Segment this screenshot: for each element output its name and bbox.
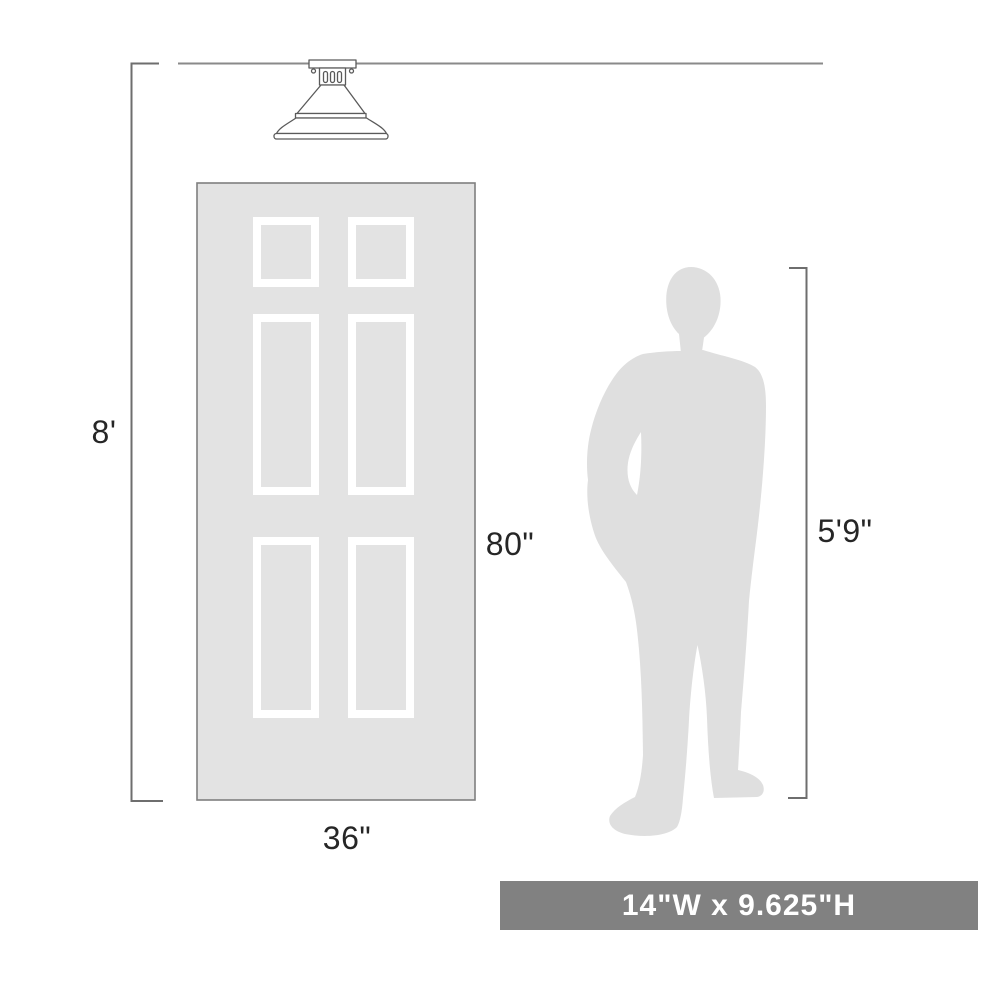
ceiling-height-label: 8' (92, 416, 117, 448)
person-head (666, 267, 720, 353)
fixture-neck-slot (324, 72, 328, 83)
fixture-dome-shade (277, 118, 387, 134)
dimension-diagram: 8' 80" 36" 5'9" 14"W x 9.625"H (0, 0, 1000, 1000)
door-panel-middle-right (348, 314, 414, 495)
fixture-flare (297, 85, 365, 114)
fixture-rim (274, 134, 388, 140)
person-height-label: 5'9" (817, 515, 872, 547)
door-panel-bottom-left (253, 537, 319, 718)
person-body (587, 350, 766, 836)
door-panel-middle-left (253, 314, 319, 495)
door-width-label: 36" (323, 822, 371, 854)
flush-mount-light-icon (274, 60, 388, 139)
fixture-band (296, 114, 367, 119)
diagram-artwork (0, 0, 1000, 1000)
door-height-label: 80" (486, 528, 534, 560)
product-dimensions-banner: 14"W x 9.625"H (500, 881, 978, 930)
door-slab (197, 183, 475, 800)
person-silhouette (587, 267, 766, 836)
door-panel-top-right (348, 217, 414, 287)
product-dimensions-text: 14"W x 9.625"H (622, 889, 856, 923)
ceiling-height-dimension-line (132, 64, 164, 802)
door-panel-top-left (253, 217, 319, 287)
door-illustration (197, 183, 475, 800)
fixture-neck-slot (338, 72, 342, 83)
fixture-neck-slot (331, 72, 335, 83)
door-panel-bottom-right (348, 537, 414, 718)
fixture-screw-right (350, 69, 354, 73)
fixture-screw-left (312, 69, 316, 73)
person-height-dimension-line (788, 268, 807, 798)
fixture-canopy-plate (309, 60, 356, 68)
